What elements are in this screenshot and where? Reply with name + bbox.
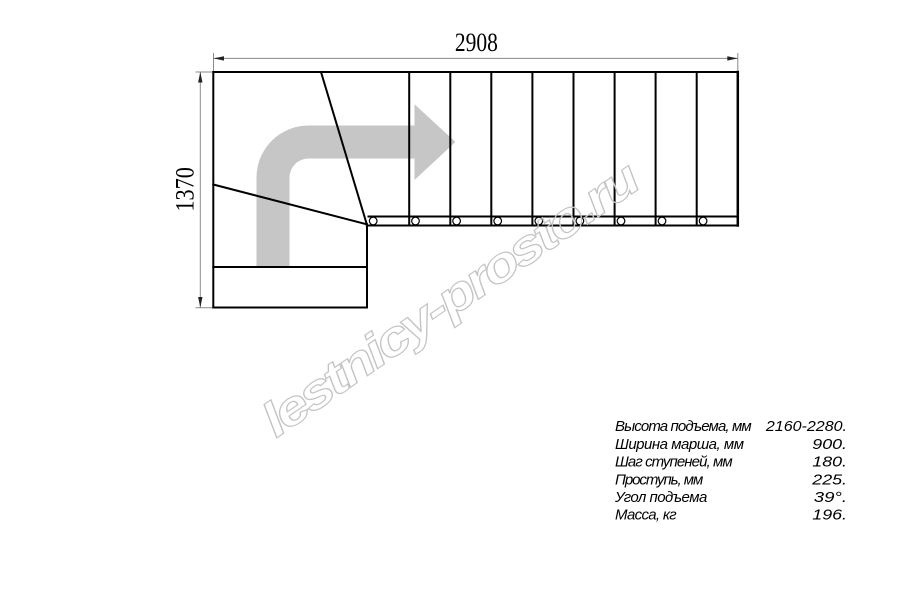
svg-text:900.: 900.	[812, 436, 847, 452]
svg-text:196.: 196.	[812, 507, 847, 523]
svg-text:225.: 225.	[811, 472, 847, 488]
svg-text:39°.: 39°.	[814, 489, 847, 506]
svg-text:Шаг ступеней, мм: Шаг ступеней, мм	[615, 454, 733, 471]
svg-text:2908: 2908	[455, 28, 498, 57]
svg-text:Угол подъема: Угол подъема	[614, 489, 707, 506]
svg-text:Проступь, мм: Проступь, мм	[615, 471, 703, 488]
svg-text:Масса, кг: Масса, кг	[615, 507, 677, 524]
svg-text:Ширина марша, мм: Ширина марша, мм	[615, 436, 744, 453]
svg-text:1370: 1370	[170, 167, 199, 212]
svg-text:2160-2280.: 2160-2280.	[765, 419, 847, 435]
svg-text:Высота подъема, мм: Высота подъема, мм	[615, 418, 752, 435]
svg-text:180.: 180.	[812, 454, 847, 470]
